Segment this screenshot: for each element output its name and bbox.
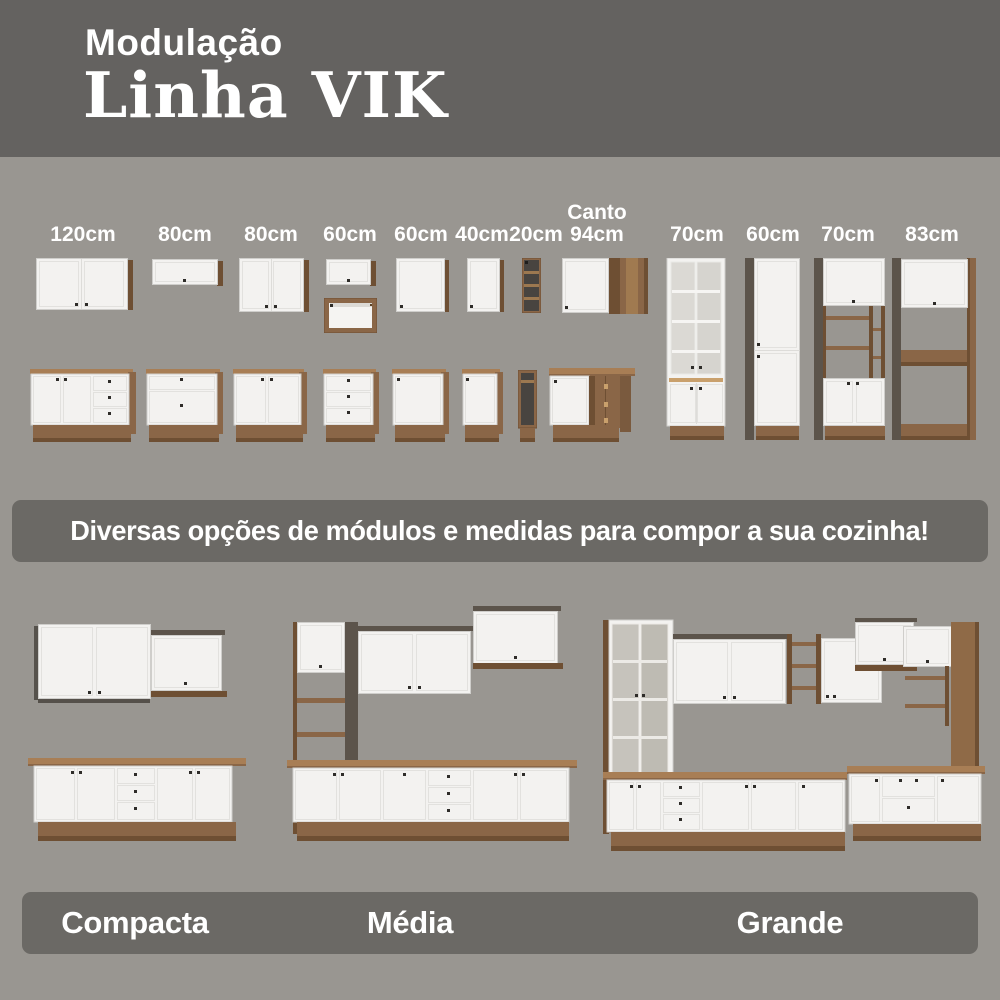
base-cabinet-40cm-illustration bbox=[462, 369, 503, 442]
kitchen-compacta-illustration bbox=[20, 610, 270, 850]
page-title: Linha VIK bbox=[83, 58, 448, 132]
wall-cabinet-120cm-illustration bbox=[36, 258, 133, 311]
kitchen-grande-illustration bbox=[593, 596, 993, 868]
oven-tower-70cm-illustration bbox=[814, 258, 886, 440]
legend-compacta: Compacta bbox=[61, 905, 208, 941]
module-label-120cm: 120cm bbox=[35, 200, 131, 246]
module-label-canto-94cm: Canto 94cm bbox=[549, 200, 645, 246]
module-label-80cm-a: 80cm bbox=[137, 200, 233, 246]
base-cabinet-120cm-illustration bbox=[30, 369, 136, 442]
wall-cabinet-40cm-illustration bbox=[467, 258, 504, 313]
info-banner: Diversas opções de módulos e medidas par… bbox=[12, 500, 988, 562]
info-banner-text: Diversas opções de módulos e medidas par… bbox=[71, 515, 930, 547]
wall-cabinet-80cm-illustration bbox=[239, 258, 309, 313]
base-cabinet-60cm-drawers-illustration bbox=[323, 369, 379, 442]
wall-flip-cabinet-60cm-illustration bbox=[326, 259, 376, 286]
corner-base-94cm-illustration bbox=[549, 368, 635, 442]
corner-wall-cabinet-94cm-illustration bbox=[562, 258, 648, 314]
open-base-20cm-illustration bbox=[518, 370, 537, 442]
header-band: Modulação Linha VIK bbox=[0, 0, 1000, 157]
base-cabinet-80cm-drawer-flip-illustration bbox=[146, 369, 223, 442]
infographic-canvas: Modulação Linha VIK 120cm 80cm 80cm 60cm… bbox=[0, 0, 1000, 1000]
fridge-frame-83cm-illustration bbox=[892, 258, 976, 440]
base-cabinet-80cm-doors-illustration bbox=[233, 369, 307, 442]
kitchen-media-illustration bbox=[283, 602, 583, 852]
legend-media: Média bbox=[367, 905, 453, 941]
module-label-83cm: 83cm bbox=[884, 200, 980, 246]
tall-cabinet-60cm-illustration bbox=[745, 258, 801, 440]
size-legend-band: Compacta Média Grande bbox=[22, 892, 978, 954]
base-cabinet-60cm-door-illustration bbox=[392, 369, 449, 442]
open-shelf-20cm-wall-illustration bbox=[522, 258, 541, 313]
wall-cabinet-60cm-illustration bbox=[396, 258, 449, 313]
module-label-70cm-b: 70cm bbox=[800, 200, 896, 246]
legend-grande: Grande bbox=[737, 905, 844, 941]
wall-niche-60cm-illustration bbox=[324, 298, 377, 333]
glass-tower-70cm-illustration bbox=[666, 258, 728, 440]
wall-flip-cabinet-80cm-illustration bbox=[152, 259, 223, 286]
